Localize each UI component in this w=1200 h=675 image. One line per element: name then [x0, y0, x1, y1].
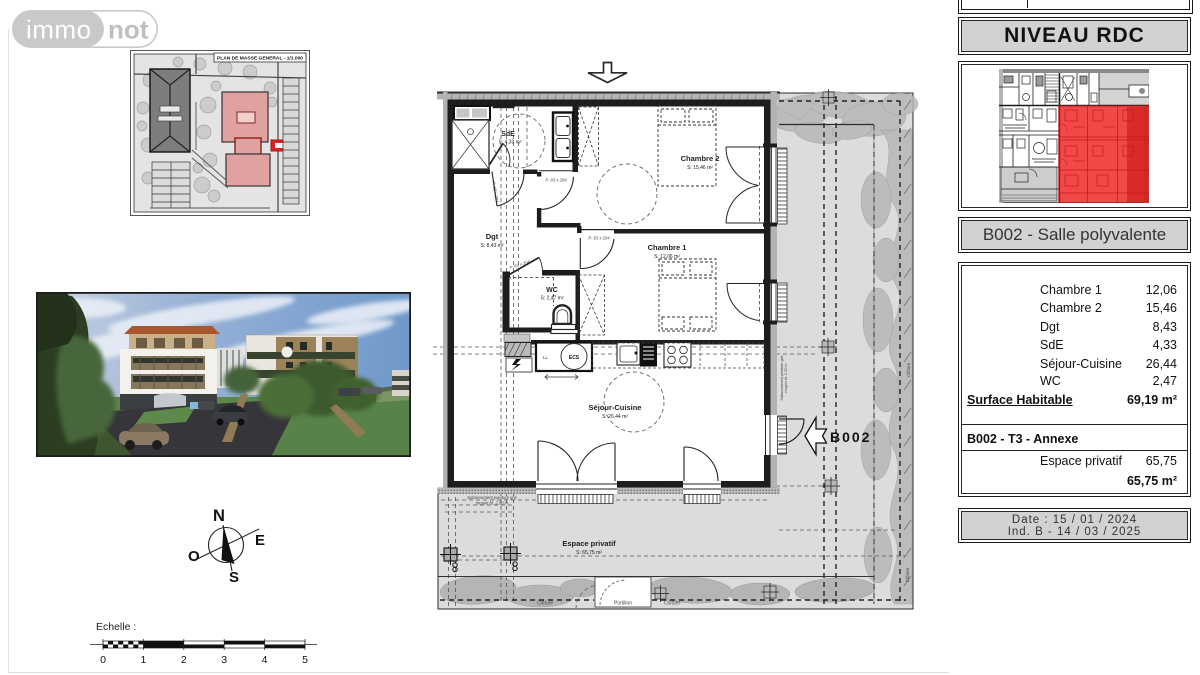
svg-text:E: E [255, 532, 265, 549]
svg-text:PLAN DE MASSE GENERAL - 1/1.00: PLAN DE MASSE GENERAL - 1/1.000 [217, 56, 303, 62]
svg-text:Clôture: Clôture [537, 601, 553, 607]
svg-text:immo: immo [26, 15, 92, 45]
svg-text:3: 3 [221, 654, 227, 666]
svg-text:Clôture: Clôture [905, 567, 910, 582]
svg-text:not: not [108, 15, 149, 45]
svg-text:S: 65,75 m²: S: 65,75 m² [576, 550, 602, 556]
svg-text:Séjour-Cuisine: Séjour-Cuisine [589, 403, 642, 412]
svg-text:B002: B002 [830, 429, 871, 445]
svg-text:O: O [188, 548, 200, 565]
svg-text:Echelle :: Echelle : [96, 621, 136, 633]
svg-text:SdE: SdE [501, 131, 515, 138]
svg-text:P: 83 x 204: P: 83 x 204 [588, 236, 610, 241]
svg-text:ECS: ECS [569, 355, 580, 361]
svg-text:Espace privatif: Espace privatif [562, 539, 616, 548]
svg-text:Portillon: Portillon [614, 601, 632, 607]
svg-text:4: 4 [262, 654, 268, 666]
svg-text:WC: WC [546, 287, 558, 294]
svg-text:P: 83 x 204: P: 83 x 204 [491, 181, 500, 203]
svg-text:2: 2 [181, 654, 187, 666]
svg-text:S: 26,44 m²: S: 26,44 m² [602, 414, 628, 420]
svg-text:LL: LL [543, 355, 549, 360]
svg-text:S: S [229, 569, 239, 586]
svg-text:Chambre 2: Chambre 2 [681, 154, 720, 163]
svg-text:N: N [213, 507, 225, 525]
svg-text:moyen ht. 2.00 m: moyen ht. 2.00 m [476, 501, 509, 506]
svg-text:0: 0 [100, 654, 106, 666]
svg-text:Clôture: Clôture [906, 362, 911, 377]
svg-text:Dgt: Dgt [486, 232, 499, 241]
svg-text:S: 4,33 m²: S: 4,33 m² [498, 140, 521, 146]
svg-text:S: 8,43 m²: S: 8,43 m² [480, 243, 503, 249]
svg-text:Chambre 1: Chambre 1 [648, 243, 687, 252]
svg-text:1: 1 [140, 654, 146, 666]
svg-text:Clôture: Clôture [664, 601, 680, 607]
svg-text:Subassement peinture gris: Subassement peinture gris [467, 495, 518, 500]
svg-text:S: 15,46 m²: S: 15,46 m² [687, 165, 713, 171]
svg-text:P: 83 x 204: P: 83 x 204 [545, 178, 567, 183]
svg-text:S: 2,47 m²: S: 2,47 m² [540, 296, 563, 302]
svg-text:S: 12,06 m²: S: 12,06 m² [654, 254, 680, 260]
svg-text:moyen ht. 2.00 m: moyen ht. 2.00 m [784, 363, 788, 392]
svg-text:5: 5 [302, 654, 308, 666]
